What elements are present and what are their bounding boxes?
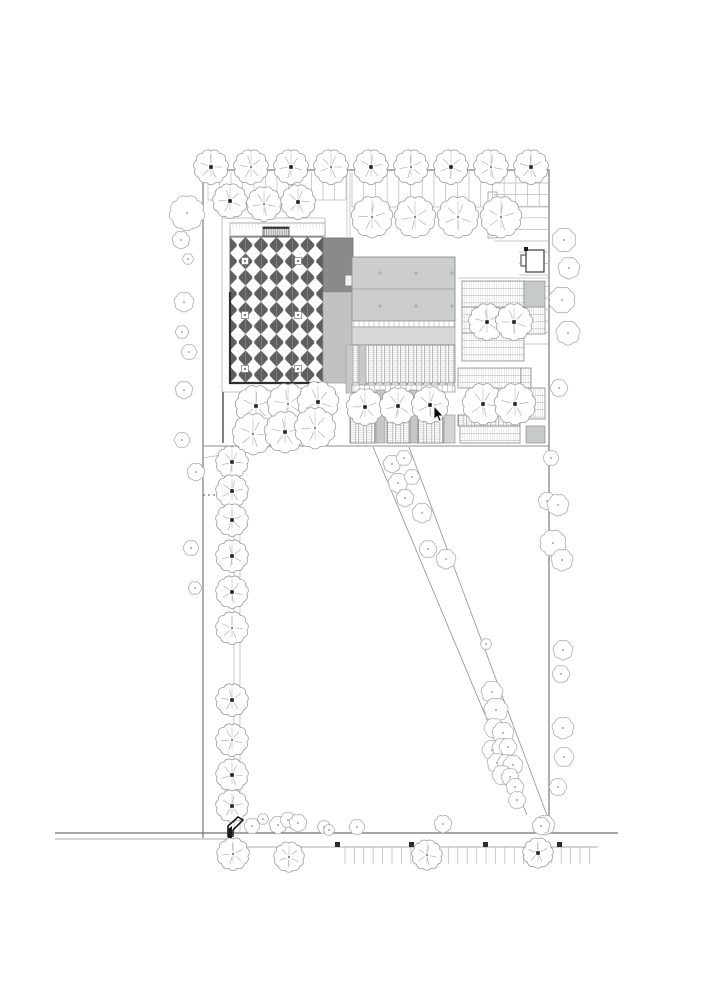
tree <box>474 150 509 185</box>
roof-rosette <box>242 258 249 265</box>
shrub <box>436 550 456 569</box>
tree <box>514 150 549 185</box>
tree <box>351 197 393 238</box>
shrub <box>396 451 412 466</box>
survey-dot <box>213 494 215 496</box>
shrub <box>175 326 188 338</box>
shrub <box>181 345 197 360</box>
guard-house <box>526 250 544 272</box>
shrub <box>552 228 575 251</box>
hall-b-seam <box>352 321 455 327</box>
roof-rosette <box>295 312 302 319</box>
shrub <box>244 819 260 834</box>
shrub <box>532 818 550 835</box>
shrub <box>174 293 194 312</box>
tree <box>247 187 282 222</box>
shrub <box>187 464 205 481</box>
tree <box>216 446 249 478</box>
tree <box>434 150 469 185</box>
tree <box>437 197 479 238</box>
tree <box>274 842 305 872</box>
shrub <box>554 748 574 767</box>
site-plan-drawing <box>0 0 707 1000</box>
tree <box>234 150 269 185</box>
roof-rosette <box>242 366 249 373</box>
shrub <box>169 196 204 231</box>
tree <box>480 197 522 238</box>
guard-house-marker <box>524 247 528 251</box>
shrub <box>499 739 517 756</box>
tree <box>274 150 309 185</box>
shrub <box>549 779 567 796</box>
bay-end-panel <box>444 415 455 443</box>
tree <box>194 150 229 185</box>
shrub <box>323 825 334 835</box>
roof-rosette <box>295 258 302 265</box>
tree <box>394 197 436 238</box>
tree <box>216 759 249 791</box>
pergola-deck <box>460 426 520 443</box>
shrub <box>558 257 580 279</box>
shrub <box>188 582 201 594</box>
tree <box>216 540 249 572</box>
shrub <box>553 641 573 660</box>
footpath-edge <box>409 447 548 818</box>
paved-tile <box>524 281 545 307</box>
tree <box>216 684 249 716</box>
tree <box>217 838 250 870</box>
shrub <box>543 451 559 466</box>
shrub <box>404 470 420 485</box>
survey-dot <box>208 494 210 496</box>
shrub <box>508 792 526 809</box>
tree <box>354 150 389 185</box>
tree <box>523 838 554 868</box>
shrub <box>257 814 268 824</box>
shrub <box>552 717 574 739</box>
shrub <box>549 287 575 313</box>
tree <box>216 504 249 536</box>
planting-marker <box>409 842 414 847</box>
shrub <box>551 549 573 571</box>
tree <box>216 724 249 756</box>
shrub <box>396 490 414 507</box>
shrub <box>552 666 570 683</box>
shrub <box>556 321 580 345</box>
tree <box>216 612 249 644</box>
roof-rosette <box>295 366 302 373</box>
shrub <box>172 232 190 249</box>
shrub <box>434 816 452 833</box>
hall-b-apron <box>352 327 455 345</box>
tree <box>216 790 249 822</box>
shrub <box>547 494 569 516</box>
tree <box>216 475 249 507</box>
shrub <box>174 433 190 448</box>
tree <box>213 184 248 219</box>
tree <box>412 840 443 870</box>
shrub <box>175 382 193 399</box>
tree <box>281 185 316 220</box>
shrub <box>182 254 193 264</box>
planting-marker <box>483 842 488 847</box>
roof-rosette <box>242 312 249 319</box>
hall-b-louver-roof <box>352 345 455 383</box>
pergola-deck <box>462 281 524 307</box>
site-plan-canvas <box>0 0 707 1000</box>
tree <box>216 576 249 608</box>
shrub <box>289 815 307 832</box>
shrub <box>349 820 365 835</box>
tree <box>314 150 349 185</box>
shrub <box>550 380 568 397</box>
planting-marker <box>335 842 340 847</box>
shrub <box>412 504 432 523</box>
shrub <box>480 639 491 649</box>
shrub <box>419 541 437 558</box>
planting-marker <box>557 842 562 847</box>
shrub <box>183 541 199 556</box>
paved-tile <box>526 426 545 443</box>
